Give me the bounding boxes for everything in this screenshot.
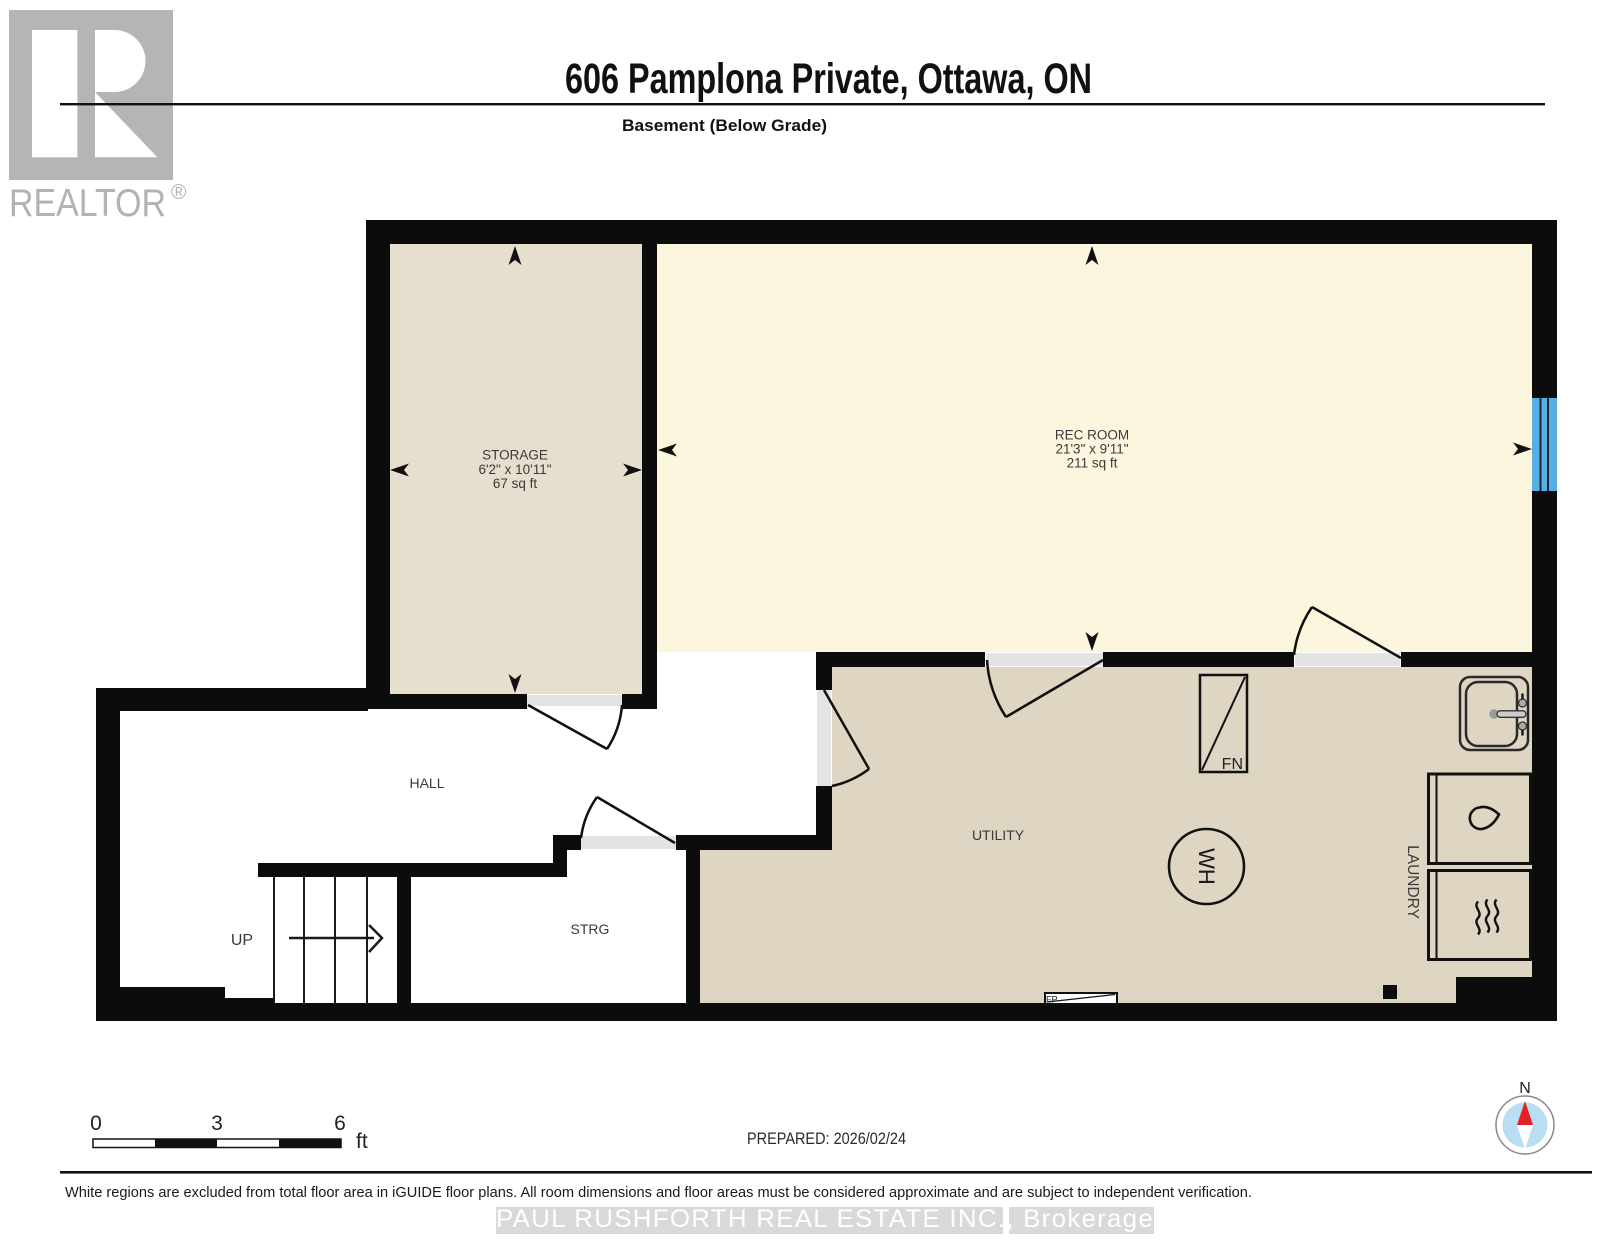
svg-text:HALL: HALL xyxy=(409,775,444,791)
svg-text:6: 6 xyxy=(334,1112,346,1135)
svg-text:FN: FN xyxy=(1222,756,1243,773)
svg-text:PAUL RUSHFORTH REAL ESTATE INC: PAUL RUSHFORTH REAL ESTATE INC., Brokera… xyxy=(496,1205,1154,1233)
svg-text:ft: ft xyxy=(356,1130,368,1153)
svg-text:211 sq ft: 211 sq ft xyxy=(1067,456,1118,471)
svg-text:REC ROOM: REC ROOM xyxy=(1055,428,1129,443)
svg-text:N: N xyxy=(1519,1080,1531,1097)
svg-text:UTILITY: UTILITY xyxy=(972,827,1025,843)
svg-text:FP: FP xyxy=(1046,995,1058,1005)
svg-text:STRG: STRG xyxy=(571,921,610,937)
svg-text:21'3" x 9'11": 21'3" x 9'11" xyxy=(1055,442,1128,457)
svg-text:6'2" x 10'11": 6'2" x 10'11" xyxy=(478,462,551,477)
svg-text:606 Pamplona Private, Ottawa,: 606 Pamplona Private, Ottawa, ON xyxy=(565,55,1092,103)
svg-text:3: 3 xyxy=(211,1112,223,1135)
svg-text:WH: WH xyxy=(1194,848,1219,885)
svg-text:67 sq ft: 67 sq ft xyxy=(493,476,538,491)
svg-text:White regions are excluded fro: White regions are excluded from total fl… xyxy=(65,1185,1252,1201)
svg-text:LAUNDRY: LAUNDRY xyxy=(1404,845,1421,919)
svg-text:PREPARED: 2026/02/24: PREPARED: 2026/02/24 xyxy=(747,1130,906,1148)
svg-text:STORAGE: STORAGE xyxy=(482,448,548,463)
svg-text:UP: UP xyxy=(231,932,253,949)
svg-text:Basement (Below Grade): Basement (Below Grade) xyxy=(622,116,827,135)
svg-text:0: 0 xyxy=(90,1112,102,1135)
svg-text:®: ® xyxy=(171,181,187,204)
svg-text:REALTOR: REALTOR xyxy=(9,182,166,225)
